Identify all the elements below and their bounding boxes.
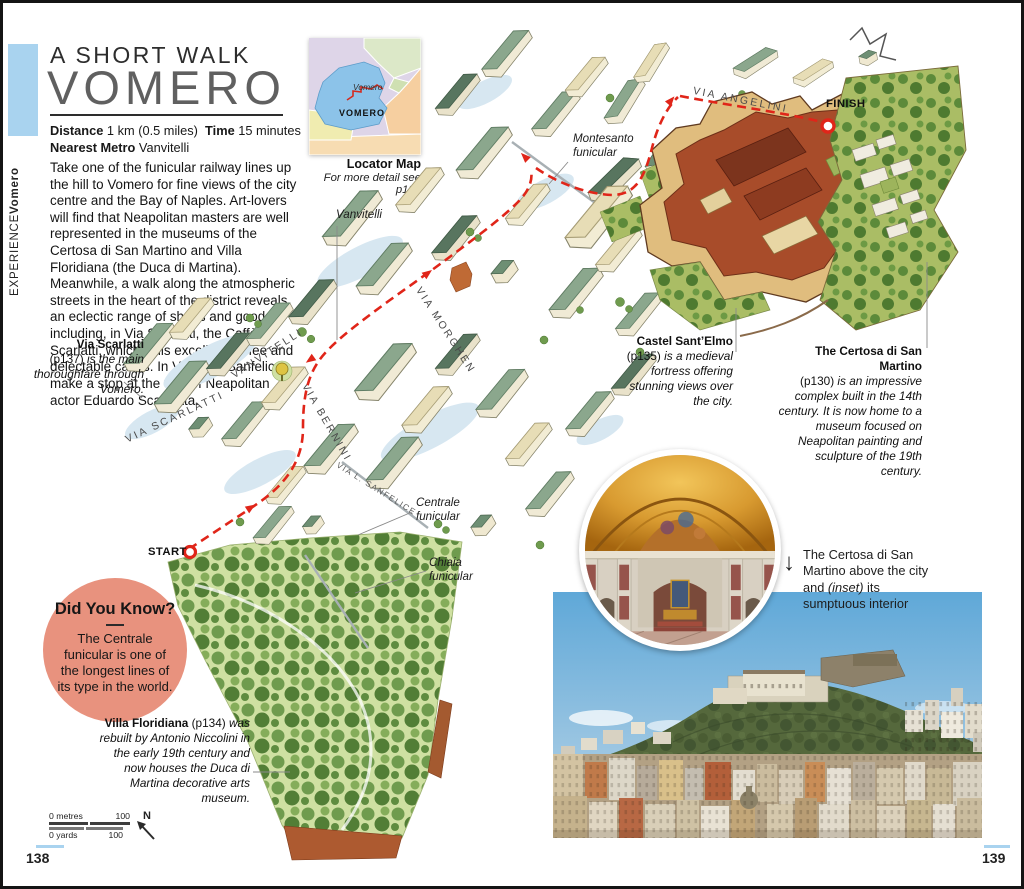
label-montesanto-funicular: Montesanto funicular [573,132,651,160]
label-vanvitelli-metro: Vanvitelli [336,208,382,222]
scale-yards-end: 100 [109,830,124,840]
piazza-vanvitelli-clock [272,361,292,381]
label-centrale-funicular: Centrale funicular [416,496,480,524]
annotation-via-scarlatti: Via Scarlatti(p137) is the main thorough… [20,337,144,397]
caption-inset: (inset) [828,580,864,595]
did-you-know-title: Did You Know? [43,600,187,619]
finish-marker [822,120,834,132]
annotation-title: The Certosa di San Martino [772,344,922,374]
scale-metres-end: 100 [116,811,131,821]
down-arrow-icon: ↓ [783,549,795,577]
scale-bar-metres [49,822,130,825]
page-number-left: 138 [26,850,49,866]
did-you-know-circle: Did You Know? The Centrale funicular is … [43,578,187,722]
annotation-body: is an impressive complex built in the 14… [779,374,922,478]
annotation-certosa: The Certosa di San Martino(p130) is an i… [772,344,922,479]
annotation-ref: (p130) [800,374,834,388]
did-you-know-divider [106,624,124,626]
annotation-castel-sant-elmo: Castel Sant’Elmo(p135) is a medieval for… [625,334,733,409]
scale-bar: 0 metres 100 0 yards 100 [49,811,130,840]
north-arrow-icon [137,821,154,839]
compass-n-label: N [143,810,151,822]
scale-metres-start: 0 metres [49,811,83,821]
villa-floridiana-park [168,532,462,860]
annotation-title: Via Scarlatti [20,337,144,352]
annotation-ref: (p137) [50,352,84,366]
annotation-title: Castel Sant’Elmo [625,334,733,349]
did-you-know-body: The Centrale funicular is one of the lon… [43,631,187,695]
annotation-villa-floridiana: Villa Floridiana (p134) was rebuilt by A… [95,716,250,806]
annotation-ref: (p135) [627,349,661,363]
photo-caption: The Certosa di San Martino above the cit… [803,547,939,613]
label-chiaia-funicular: Chiaia funicular [429,556,493,584]
north-compass: N [133,808,161,847]
page-number-right: 139 [982,850,1005,866]
scale-yards-start: 0 yards [49,830,78,840]
finish-label: FINISH [826,98,865,110]
annotation-title: Villa Floridiana [105,716,189,730]
annotation-ref: (p134) [192,716,226,730]
inset-photo-certosa-interior [579,449,781,651]
page-number-rule-right [984,845,1010,848]
page-number-rule-left [36,845,64,848]
start-label: START [148,546,187,558]
